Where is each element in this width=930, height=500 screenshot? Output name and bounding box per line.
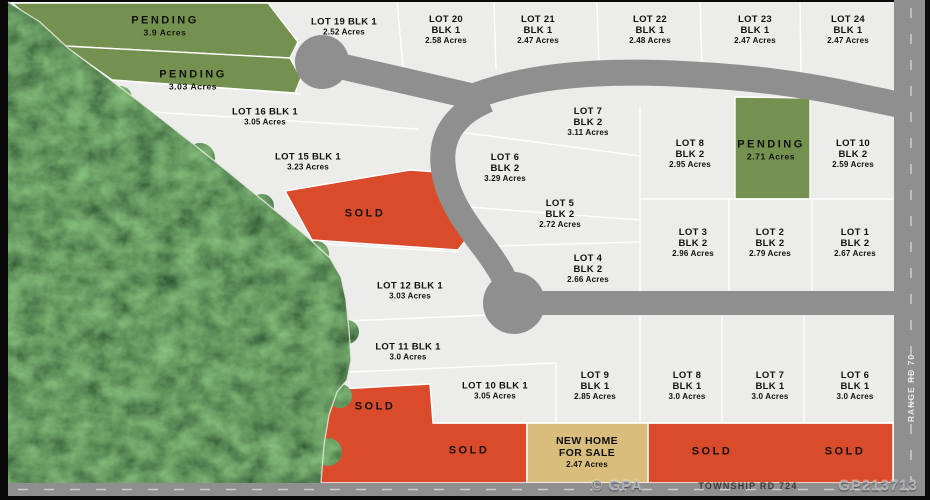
lot-acreage-text: 3.23 Acres xyxy=(275,163,341,172)
lot-label: LOT 24BLK 12.47 Acres xyxy=(827,14,869,46)
lot-acreage-text: 2.47 Acres xyxy=(827,36,869,45)
lot-name-text: BLK 2 xyxy=(832,149,874,160)
lot-acreage-text: 2.52 Acres xyxy=(311,28,377,37)
lot-label: LOT 23BLK 12.47 Acres xyxy=(734,14,776,46)
plat-map: PENDING3.9 AcresPENDING3.03 AcresLOT 19 … xyxy=(0,0,930,500)
labels-layer: PENDING3.9 AcresPENDING3.03 AcresLOT 19 … xyxy=(0,0,930,500)
lot-name-text: LOT 6 xyxy=(484,152,526,163)
lot-acreage-text: 3.0 Acres xyxy=(375,353,440,362)
lot-name-text: LOT 5 xyxy=(539,198,581,209)
lot-acreage-text: 2.47 Acres xyxy=(734,36,776,45)
lot-name-text: BLK 2 xyxy=(567,264,609,275)
watermark-right: GP213713 xyxy=(838,478,918,495)
lot-acreage-text: 2.95 Acres xyxy=(669,160,711,169)
lot-acreage-text: 3.9 Acres xyxy=(131,27,199,37)
lot-name-text: SOLD xyxy=(345,208,386,221)
lot-acreage-text: 3.05 Acres xyxy=(232,118,298,127)
lot-label: LOT 2BLK 22.79 Acres xyxy=(749,227,791,259)
lot-acreage-text: 3.0 Acres xyxy=(836,392,873,401)
lot-label: LOT 9BLK 12.85 Acres xyxy=(574,370,616,402)
lot-name-text: BLK 1 xyxy=(574,381,616,392)
lot-name-text: LOT 1 xyxy=(834,227,876,238)
range-road-label: RANGE RD 70 xyxy=(906,354,916,422)
lot-name-text: NEW HOME xyxy=(556,435,618,447)
lot-label: LOT 21BLK 12.47 Acres xyxy=(517,14,559,46)
lot-label: LOT 7BLK 13.0 Acres xyxy=(751,370,788,402)
lot-acreage-text: 2.67 Acres xyxy=(834,249,876,258)
lot-acreage-text: 2.58 Acres xyxy=(425,36,467,45)
lot-label: LOT 8BLK 13.0 Acres xyxy=(668,370,705,402)
status-label: SOLD xyxy=(825,446,866,459)
lot-name-text: BLK 2 xyxy=(484,163,526,174)
lot-name-text: BLK 2 xyxy=(749,238,791,249)
lot-acreage-text: 3.0 Acres xyxy=(751,392,788,401)
lot-acreage-text: 2.48 Acres xyxy=(629,36,671,45)
lot-acreage-text: 2.59 Acres xyxy=(832,160,874,169)
lot-name-text: LOT 10 xyxy=(832,138,874,149)
lot-name-text: BLK 2 xyxy=(669,149,711,160)
lot-label: LOT 10BLK 22.59 Acres xyxy=(832,138,874,170)
lot-label: LOT 6BLK 13.0 Acres xyxy=(836,370,873,402)
lot-name-text: BLK 1 xyxy=(629,25,671,36)
lot-name-text: BLK 1 xyxy=(836,381,873,392)
lot-label: LOT 11 BLK 13.0 Acres xyxy=(375,342,440,363)
status-label: SOLD xyxy=(345,208,386,221)
lot-acreage-text: 2.72 Acres xyxy=(539,220,581,229)
township-road-label: TOWNSHIP RD 724 xyxy=(698,481,797,491)
lot-name-text: PENDING xyxy=(159,69,227,82)
lot-name-text: BLK 1 xyxy=(734,25,776,36)
lot-acreage-text: 3.11 Acres xyxy=(567,128,608,137)
lot-label: LOT 15 BLK 13.23 Acres xyxy=(275,152,341,173)
lot-name-text: BLK 1 xyxy=(827,25,869,36)
lot-acreage-text: 3.03 Acres xyxy=(159,81,227,91)
lot-name-text: BLK 1 xyxy=(668,381,705,392)
lot-label: LOT 20BLK 12.58 Acres xyxy=(425,14,467,46)
status-label: PENDING3.03 Acres xyxy=(159,69,227,92)
lot-label: LOT 1BLK 22.67 Acres xyxy=(834,227,876,259)
status-label: SOLD xyxy=(692,446,733,459)
lot-name-text: LOT 10 BLK 1 xyxy=(462,381,528,392)
lot-name-text: SOLD xyxy=(449,445,490,458)
lot-label: LOT 6BLK 23.29 Acres xyxy=(484,152,526,184)
lot-name-text: LOT 20 xyxy=(425,14,467,25)
lot-label: LOT 10 BLK 13.05 Acres xyxy=(462,381,528,402)
lot-name-text: LOT 8 xyxy=(668,370,705,381)
lot-name-text: LOT 22 xyxy=(629,14,671,25)
lot-label: LOT 8BLK 22.95 Acres xyxy=(669,138,711,170)
lot-acreage-text: 3.0 Acres xyxy=(668,392,705,401)
lot-acreage-text: 2.71 Acres xyxy=(737,151,805,161)
lot-label: LOT 16 BLK 13.05 Acres xyxy=(232,107,298,128)
lot-label: LOT 19 BLK 12.52 Acres xyxy=(311,17,377,38)
lot-label: LOT 7BLK 23.11 Acres xyxy=(567,106,608,138)
lot-name-text: LOT 19 BLK 1 xyxy=(311,17,377,28)
lot-name-text: BLK 1 xyxy=(517,25,559,36)
status-label: PENDING3.9 Acres xyxy=(131,15,199,38)
lot-name-text: LOT 23 xyxy=(734,14,776,25)
lot-name-text: LOT 16 BLK 1 xyxy=(232,107,298,118)
lot-name-text: FOR SALE xyxy=(556,447,618,459)
lot-name-text: BLK 1 xyxy=(751,381,788,392)
lot-acreage-text: 2.66 Acres xyxy=(567,275,609,284)
lot-name-text: LOT 8 xyxy=(669,138,711,149)
lot-name-text: LOT 21 xyxy=(517,14,559,25)
lot-name-text: BLK 2 xyxy=(672,238,714,249)
lot-name-text: LOT 7 xyxy=(567,106,608,117)
lot-name-text: LOT 11 BLK 1 xyxy=(375,342,440,353)
lot-name-text: LOT 24 xyxy=(827,14,869,25)
lot-acreage-text: 3.05 Acres xyxy=(462,392,528,401)
lot-name-text: LOT 4 xyxy=(567,253,609,264)
lot-name-text: LOT 15 BLK 1 xyxy=(275,152,341,163)
lot-name-text: PENDING xyxy=(737,139,805,152)
status-label: PENDING2.71 Acres xyxy=(737,139,805,162)
lot-name-text: LOT 12 BLK 1 xyxy=(377,281,443,292)
lot-acreage-text: 3.29 Acres xyxy=(484,174,526,183)
lot-acreage-text: 2.47 Acres xyxy=(556,460,618,469)
lot-acreage-text: 2.79 Acres xyxy=(749,249,791,258)
lot-acreage-text: 2.96 Acres xyxy=(672,249,714,258)
lot-name-text: SOLD xyxy=(692,446,733,459)
lot-label: LOT 12 BLK 13.03 Acres xyxy=(377,281,443,302)
lot-name-text: PENDING xyxy=(131,15,199,28)
lot-name-text: SOLD xyxy=(355,401,396,414)
lot-label: LOT 4BLK 22.66 Acres xyxy=(567,253,609,285)
status-label: SOLD xyxy=(449,445,490,458)
lot-acreage-text: 2.47 Acres xyxy=(517,36,559,45)
lot-name-text: BLK 1 xyxy=(425,25,467,36)
lot-label: LOT 22BLK 12.48 Acres xyxy=(629,14,671,46)
lot-label: LOT 5BLK 22.72 Acres xyxy=(539,198,581,230)
watermark-left: © GPA xyxy=(591,478,643,495)
lot-acreage-text: 2.85 Acres xyxy=(574,392,616,401)
lot-name-text: LOT 7 xyxy=(751,370,788,381)
status-label: SOLD xyxy=(355,401,396,414)
lot-name-text: BLK 2 xyxy=(834,238,876,249)
lot-name-text: SOLD xyxy=(825,446,866,459)
lot-name-text: LOT 3 xyxy=(672,227,714,238)
lot-name-text: LOT 2 xyxy=(749,227,791,238)
new-home-label: NEW HOMEFOR SALE2.47 Acres xyxy=(556,435,618,469)
lot-name-text: BLK 2 xyxy=(567,117,608,128)
lot-acreage-text: 3.03 Acres xyxy=(377,292,443,301)
lot-name-text: LOT 9 xyxy=(574,370,616,381)
lot-name-text: BLK 2 xyxy=(539,209,581,220)
lot-label: LOT 3BLK 22.96 Acres xyxy=(672,227,714,259)
lot-name-text: LOT 6 xyxy=(836,370,873,381)
